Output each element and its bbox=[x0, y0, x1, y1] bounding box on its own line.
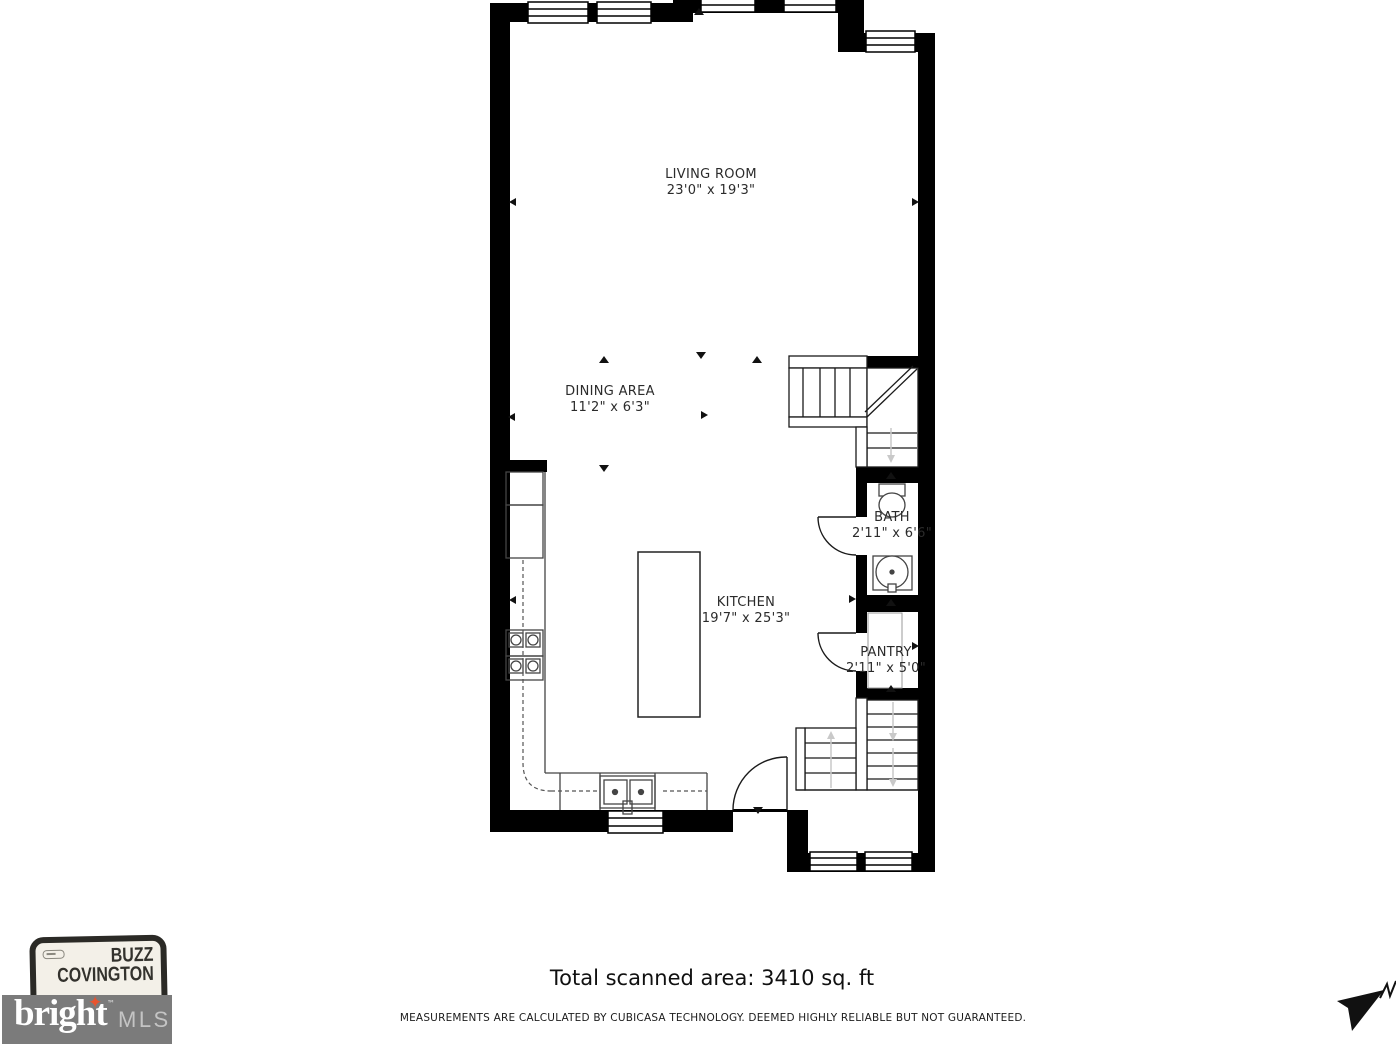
staircase-upper bbox=[789, 356, 918, 467]
room-name: PANTRY bbox=[846, 645, 926, 661]
disclaimer-text: MEASUREMENTS ARE CALCULATED BY CUBICASA … bbox=[400, 1012, 1026, 1024]
room-label-bath: BATH 2'11" x 6'6" bbox=[852, 510, 932, 542]
refrigerator bbox=[506, 505, 543, 558]
floorplan-drawing bbox=[0, 0, 1396, 1044]
room-dims: 2'11" x 6'6" bbox=[852, 526, 932, 542]
room-name: LIVING ROOM bbox=[665, 167, 757, 183]
floorplan-page: LIVING ROOM 23'0" x 19'3" DINING AREA 11… bbox=[0, 0, 1396, 1044]
room-label-kitchen: KITCHEN 19'7" x 25'3" bbox=[702, 595, 791, 627]
kitchen-island bbox=[638, 552, 700, 717]
staircase-lower bbox=[796, 698, 918, 790]
window-icon bbox=[528, 2, 588, 23]
cabinet bbox=[506, 472, 543, 505]
north-arrow-icon bbox=[1337, 981, 1396, 1031]
room-dims: 2'11" x 5'0" bbox=[846, 661, 926, 677]
room-label-dining-area: DINING AREA 11'2" x 6'3" bbox=[565, 384, 655, 416]
kitchen-fixtures bbox=[506, 472, 707, 814]
room-dims: 23'0" x 19'3" bbox=[665, 183, 757, 199]
window-icon bbox=[865, 852, 912, 871]
window-icon bbox=[784, 0, 836, 12]
mls-suffix: MLS bbox=[118, 1007, 171, 1033]
window-icon bbox=[608, 811, 663, 833]
bright-mls-logo: bright ✦ ™ MLS bbox=[2, 995, 172, 1044]
door-kitchen-entry bbox=[733, 757, 787, 810]
room-label-pantry: PANTRY 2'11" x 5'0" bbox=[846, 645, 926, 677]
cooktop-icon bbox=[506, 630, 543, 680]
room-name: DINING AREA bbox=[565, 384, 655, 400]
door-bath bbox=[818, 517, 856, 555]
upper-cabinet-dashed-lines bbox=[523, 560, 707, 791]
total-area-text: Total scanned area: 3410 sq. ft bbox=[550, 966, 874, 990]
bathroom-sink-icon bbox=[873, 556, 912, 592]
window-icon bbox=[866, 31, 915, 52]
window-icon bbox=[810, 852, 857, 871]
room-dims: 19'7" x 25'3" bbox=[702, 611, 791, 627]
trademark-symbol: ™ bbox=[107, 999, 115, 1008]
window-icon bbox=[597, 2, 651, 23]
room-label-living-room: LIVING ROOM 23'0" x 19'3" bbox=[665, 167, 757, 199]
room-dims: 11'2" x 6'3" bbox=[565, 400, 655, 416]
room-name: KITCHEN bbox=[702, 595, 791, 611]
window-icon bbox=[701, 0, 755, 12]
star-icon: ✦ bbox=[88, 995, 102, 1012]
kitchen-sink-icon bbox=[600, 776, 655, 814]
room-name: BATH bbox=[852, 510, 932, 526]
agent-name: BUZZ COVINGTON bbox=[57, 946, 154, 986]
